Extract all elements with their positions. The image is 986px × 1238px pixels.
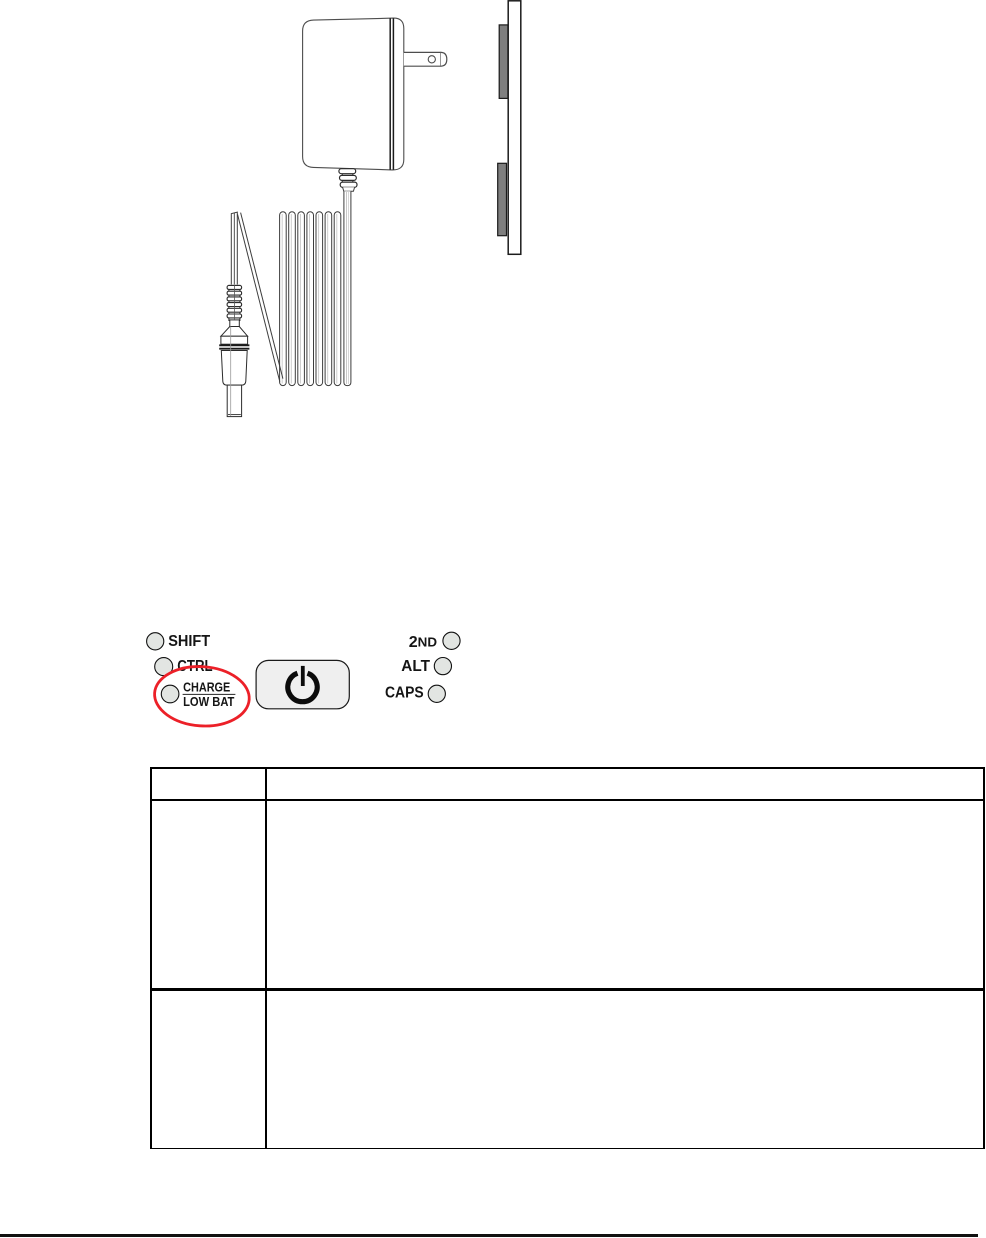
svg-text:ALT: ALT — [401, 658, 430, 675]
svg-text:CHARGE: CHARGE — [183, 680, 230, 695]
svg-text:2: 2 — [409, 634, 418, 651]
svg-text:ND: ND — [418, 635, 437, 650]
svg-text:SHIFT: SHIFT — [168, 633, 210, 650]
svg-text:LOW BAT: LOW BAT — [183, 694, 234, 709]
svg-text:CAPS: CAPS — [385, 685, 424, 702]
